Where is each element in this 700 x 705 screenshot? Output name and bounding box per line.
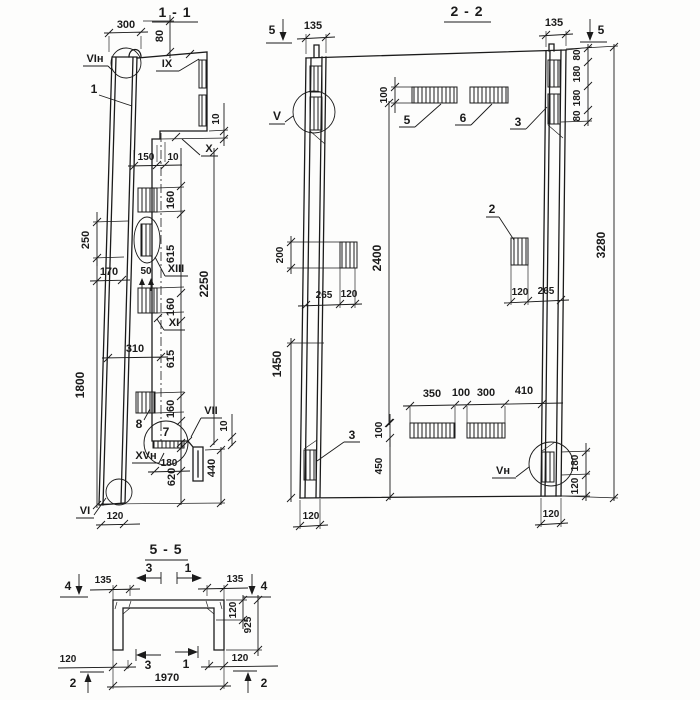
dim-2400: 2400 <box>370 99 393 427</box>
hatch-block <box>199 95 207 126</box>
dim-label: 615 <box>165 350 177 368</box>
dim-200: 200 <box>275 236 340 274</box>
hatch-block <box>138 188 157 212</box>
cut-marker-3-top: 3 <box>136 561 161 584</box>
marker-label: Vн <box>496 465 510 477</box>
dim-chain-bottom: 350 100 300 410 <box>403 385 563 423</box>
section-2-2: 2 - 2 135 <box>266 3 618 530</box>
dim-10-step: 10 <box>160 103 228 146</box>
dim-label: 265 <box>316 290 333 301</box>
dim-label: 80 <box>572 110 583 122</box>
cut-marker-4-right: 4 <box>243 574 271 597</box>
cut-marker-4-left: 4 <box>60 574 88 597</box>
dim-310: 310 <box>102 343 168 362</box>
dim-label: 150 <box>138 152 155 163</box>
dim-label: 440 <box>206 459 218 477</box>
part-label-3-top: 3 <box>510 107 547 129</box>
dim-label: 160 <box>165 191 177 209</box>
cut-marker-5-right: 5 <box>580 19 607 42</box>
marker-label: VIн <box>86 53 103 65</box>
dim-label: 170 <box>100 266 118 278</box>
marker-xvn: XVн <box>132 450 164 463</box>
cut-label: 4 <box>261 579 268 593</box>
part-label-5: 5 <box>399 104 441 127</box>
dim-135-right: 135 <box>198 574 248 600</box>
part-label-2: 2 <box>486 202 514 240</box>
dim-135-left: 135 <box>90 575 140 600</box>
part-label-7: 7 <box>163 425 170 439</box>
dim-label: 1970 <box>155 672 179 684</box>
cut-marker-2-left: 2 <box>70 672 104 693</box>
dim-label: 1800 <box>73 371 87 398</box>
hatch-strip <box>470 87 508 103</box>
hatch-block <box>199 60 207 88</box>
cut-arrow-left-icon <box>136 574 146 582</box>
section-2-2-header: 2 - 2 <box>444 3 491 22</box>
dim-label: 135 <box>95 575 112 586</box>
dim-label: 100 <box>379 86 390 103</box>
cut-arrow-down-icon <box>249 586 256 595</box>
dim-label: 10 <box>219 420 230 432</box>
part-label: 5 <box>404 113 411 127</box>
hatch-block <box>138 288 157 313</box>
dim-3280: 3280 <box>561 43 618 502</box>
dim-label: 200 <box>275 246 286 263</box>
part-label-3-bottom: 3 <box>317 428 360 461</box>
cut-label: 2 <box>70 676 77 690</box>
dim-label: 120 <box>60 654 77 665</box>
cut-marker-1-bottom: 1 <box>175 646 198 671</box>
marker-label: VII <box>204 405 217 417</box>
cut-arrow-down-icon <box>587 32 594 41</box>
dim-label: 135 <box>227 574 244 585</box>
marker-label: VI <box>80 505 90 517</box>
part-label: 6 <box>460 111 467 125</box>
dim-label: 350 <box>423 388 441 400</box>
dim-label: 1450 <box>270 350 284 377</box>
dim-120-bottom-left: 120 <box>58 654 136 671</box>
section-5-5: 5 - 5 4 135 3 1 135 <box>58 541 278 693</box>
dim-120-bottom-right: 120 <box>201 653 278 670</box>
dim-label: 120 <box>570 477 581 494</box>
part-label: 8 <box>136 417 143 431</box>
hatch-block <box>542 452 554 482</box>
dim-label: 310 <box>126 343 144 355</box>
dim-150-10: 150 10 <box>128 142 182 170</box>
dim-label: 2250 <box>197 270 211 297</box>
marker-label: XIII <box>168 263 185 275</box>
cut-label: 3 <box>146 561 153 575</box>
cut-arrow-up-icon <box>85 673 92 682</box>
cut-marker-2-right: 2 <box>233 671 268 693</box>
cut-label: 5 <box>598 23 605 37</box>
dim-2250: 2250 <box>197 148 218 447</box>
part-label: 2 <box>489 202 496 216</box>
part-label: 3 <box>349 428 356 442</box>
dim-180-120-right: 180 120 <box>561 443 590 501</box>
cut-arrow-left-icon <box>136 651 146 659</box>
hatch-block <box>310 97 322 130</box>
cut-label: 3 <box>145 658 152 672</box>
lifting-loop <box>314 45 319 57</box>
slot-insert <box>141 224 152 256</box>
hatch-block <box>548 94 560 124</box>
section-title: 1 - 1 <box>158 4 191 20</box>
dim-label: 620 <box>166 468 178 486</box>
marker-vi: VI <box>76 498 106 518</box>
dim-label: 120 <box>303 511 320 522</box>
cut-label: 4 <box>65 579 72 593</box>
hatch-block <box>511 238 528 265</box>
dim-label: 3280 <box>594 231 608 258</box>
dim-label: 100 <box>374 421 385 438</box>
dim-135-left: 135 <box>297 20 335 54</box>
marker-label: IX <box>162 58 173 70</box>
hatch-strip <box>412 87 457 103</box>
channel-outline <box>113 600 224 650</box>
dim-label: 10 <box>167 152 179 163</box>
hatch-block <box>340 242 357 268</box>
dim-label: 180 <box>572 65 583 82</box>
dim-label: 925 <box>243 616 254 633</box>
cut-marker-1-top: 1 <box>177 561 202 584</box>
dim-label: 180 <box>161 458 178 469</box>
dim-135-right: 135 <box>539 17 573 47</box>
section-1-1: 1 - 1 300 <box>73 4 236 529</box>
dim-label: 120 <box>232 653 249 664</box>
marker-vn: Vн <box>492 465 529 478</box>
marker-vin: VIн <box>83 53 112 70</box>
dim-450: 450 <box>374 438 394 501</box>
part-label: 3 <box>515 115 522 129</box>
hatch-block <box>136 392 155 413</box>
drawing-canvas: 1 - 1 300 <box>0 0 700 700</box>
dim-label: 10 <box>211 113 222 125</box>
hatch-block <box>548 60 560 87</box>
part-label: 1 <box>91 82 98 96</box>
section-5-5-header: 5 - 5 <box>145 541 188 560</box>
panel-outline <box>293 44 573 498</box>
dim-label: 300 <box>117 19 135 31</box>
dim-label: 135 <box>304 20 322 32</box>
dim-label: 160 <box>165 400 177 418</box>
dim-label: 120 <box>543 509 560 520</box>
dim-100-bottom: 100 <box>374 414 394 447</box>
dim-300: 300 <box>104 19 148 52</box>
section-1-1-header: 1 - 1 <box>152 4 198 22</box>
dim-120-bottom: 120 <box>96 511 140 529</box>
dim-label: 2400 <box>370 244 384 271</box>
dim-label: 120 <box>107 511 124 522</box>
dim-label: 250 <box>80 231 92 249</box>
cut-arrow-down-icon <box>280 32 287 41</box>
dim-label: 180 <box>570 454 581 471</box>
dim-chain-right: 160 615 160 615 160 <box>155 148 185 472</box>
dim-label: 135 <box>545 17 563 29</box>
hatch-block <box>310 66 322 92</box>
marker-label: XI <box>169 317 179 329</box>
detail-circle-vi <box>106 479 132 505</box>
dim-label: 80 <box>572 49 583 61</box>
dim-label: 120 <box>228 601 239 618</box>
dim-80: 80 <box>143 15 174 58</box>
dim-label: 120 <box>341 289 358 300</box>
dim-label: 615 <box>165 245 177 263</box>
drawing-sheet: 1 - 1 300 <box>0 0 700 700</box>
dim-label: 160 <box>165 298 177 316</box>
dim-label: 410 <box>515 385 533 397</box>
cut-marker-3-bottom: 3 <box>136 649 161 672</box>
marker-label: X <box>205 143 213 155</box>
dim-1800: 1800 <box>73 258 101 509</box>
part-label: 7 <box>163 425 170 439</box>
dim-label: 120 <box>512 287 529 298</box>
cut-label: 1 <box>183 657 190 671</box>
section-title: 5 - 5 <box>149 541 182 557</box>
section-title: 2 - 2 <box>450 3 483 19</box>
cut-arrow-right-icon <box>192 574 202 582</box>
dim-100-top: 100 <box>379 77 412 113</box>
marker-v: V <box>269 109 293 124</box>
cut-marker-5-left: 5 <box>266 19 292 43</box>
dim-120-265-right: 120 265 <box>504 265 569 306</box>
marker-label: V <box>273 109 281 123</box>
hatch-strip <box>410 423 455 438</box>
marker-label: XVн <box>135 450 156 462</box>
part-label-6: 6 <box>455 104 492 125</box>
cut-label: 1 <box>185 561 192 575</box>
dim-label: 265 <box>538 286 555 297</box>
dim-label: 180 <box>572 89 583 106</box>
dim-620: 620 <box>166 444 185 507</box>
dim-label: 450 <box>374 457 385 474</box>
dim-label: 100 <box>452 387 470 399</box>
dim-10-vii: 10 <box>219 414 236 449</box>
dim-120-bottom-right-col: 120 <box>535 498 568 528</box>
marker-x: X <box>172 133 218 156</box>
dim-label: 300 <box>477 387 495 399</box>
cut-arrow-right-icon <box>188 648 198 656</box>
dim-250: 250 <box>80 212 128 266</box>
hatch-block <box>304 450 316 480</box>
marker-vii: VII <box>184 405 222 445</box>
cut-label: 5 <box>269 23 276 37</box>
dim-120-bottom-left-col: 120 <box>293 499 328 530</box>
cut-arrow-up-icon <box>245 672 252 681</box>
dim-label: 50 <box>140 266 152 277</box>
hatch-strip <box>467 423 505 438</box>
cut-arrow-down-icon <box>76 586 83 595</box>
dim-label: 80 <box>154 30 166 42</box>
cut-label: 2 <box>261 676 268 690</box>
